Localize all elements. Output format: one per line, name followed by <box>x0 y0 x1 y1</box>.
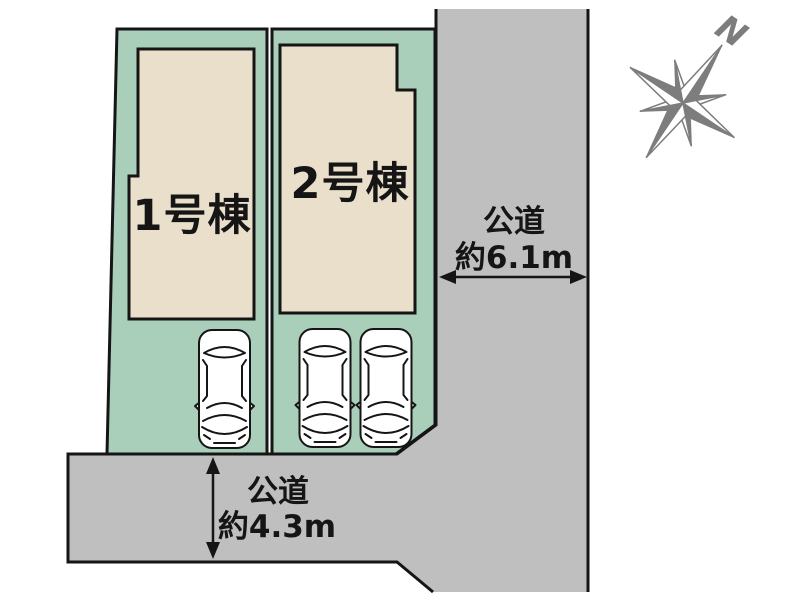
site-plan-drawing: 1号棟 2号棟 公道 約6.1m 公道 約4.3m <box>0 0 800 600</box>
site-plan: 1号棟 2号棟 公道 約6.1m 公道 約4.3m <box>0 0 800 600</box>
south-road-name-label: 公道 <box>247 474 309 510</box>
compass-rose: N <box>593 0 794 192</box>
car <box>296 329 355 447</box>
north-label: N <box>708 7 754 56</box>
south-road-width-label: 約4.3m <box>218 509 336 545</box>
car <box>357 329 416 447</box>
east-road-width-label: 約6.1m <box>455 240 573 276</box>
car <box>195 330 254 448</box>
east-road-name-label: 公道 <box>483 204 545 240</box>
building-2-label: 2号棟 <box>291 159 410 209</box>
building-1-label: 1号棟 <box>133 191 252 241</box>
building-1-footprint <box>129 49 254 319</box>
